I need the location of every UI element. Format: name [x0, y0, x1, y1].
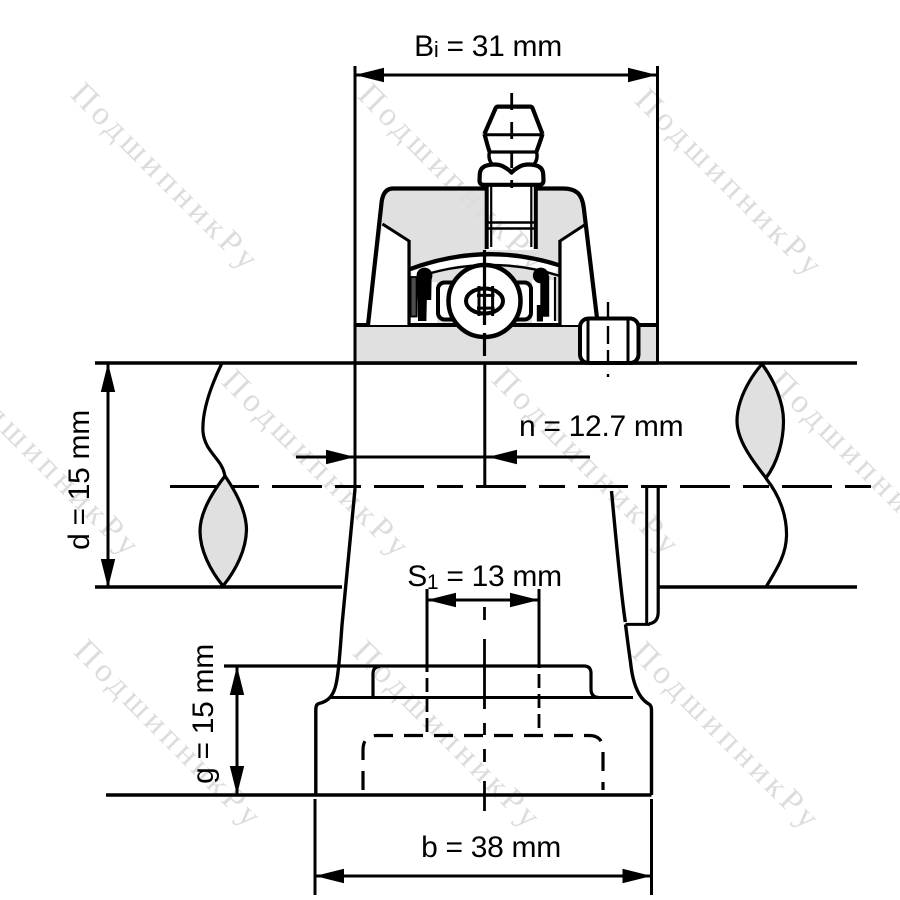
- svg-text:b = 38 mm: b = 38 mm: [421, 831, 561, 864]
